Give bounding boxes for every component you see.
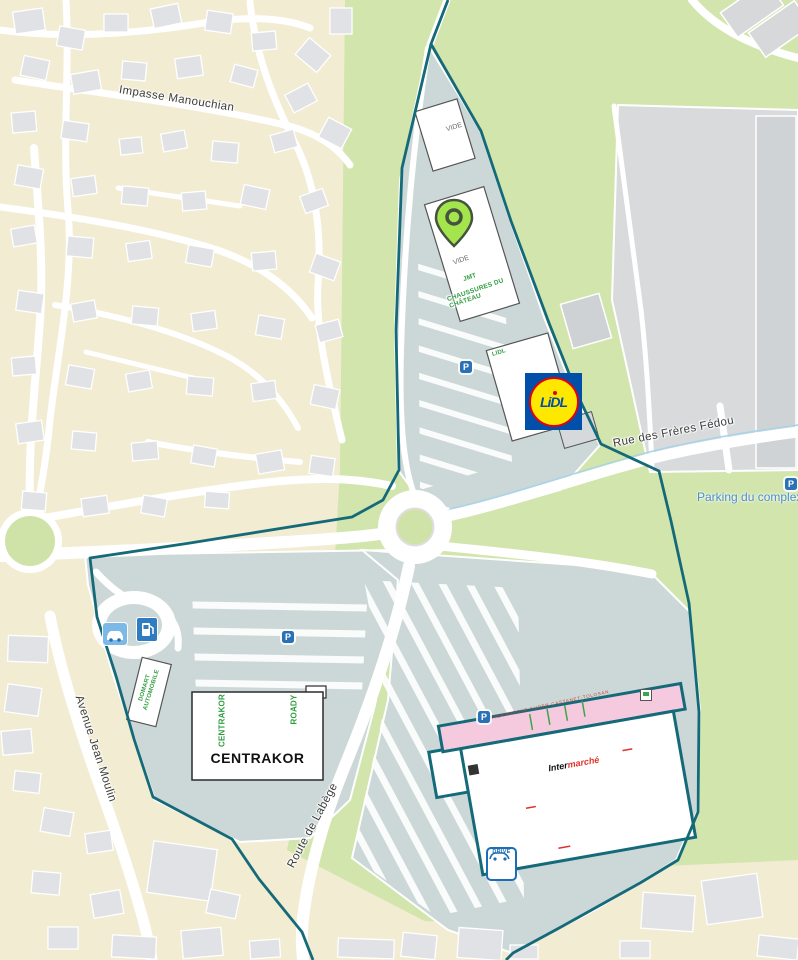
- house: [111, 935, 156, 959]
- house: [119, 137, 143, 155]
- house: [401, 932, 437, 959]
- house: [71, 431, 96, 451]
- house: [255, 315, 284, 339]
- house: [338, 938, 395, 959]
- house: [205, 10, 234, 33]
- roady-vertical-label: ROADY: [290, 690, 299, 730]
- house: [141, 495, 168, 517]
- house: [11, 111, 37, 133]
- house: [104, 14, 128, 32]
- house: [31, 871, 61, 895]
- house: [457, 928, 503, 960]
- house: [81, 495, 109, 516]
- parking-icon: P: [478, 711, 490, 723]
- centrakor-building: [192, 692, 323, 780]
- centrakor-label: CENTRAKOR: [192, 750, 323, 766]
- house: [251, 31, 276, 51]
- parking-rows-centrakor: [192, 586, 368, 694]
- drive-pickup-icon: DRIVE: [486, 847, 517, 881]
- parking-icon: P: [460, 361, 472, 373]
- house: [71, 300, 98, 322]
- house: [90, 890, 124, 919]
- west-circle-center: [5, 516, 55, 566]
- parking-complexe-label: Parking du complexe: [697, 490, 798, 504]
- centrakor-vertical-label: CENTRAKOR: [218, 685, 227, 757]
- house: [211, 141, 239, 163]
- lidl-i-dot: [553, 391, 557, 395]
- house: [85, 830, 114, 853]
- lidl-logo: LiDL: [525, 373, 582, 430]
- house: [249, 939, 280, 959]
- house: [16, 290, 45, 313]
- house: [255, 450, 284, 474]
- house: [620, 941, 650, 958]
- house: [16, 420, 45, 443]
- house: [186, 245, 215, 267]
- house: [147, 841, 218, 901]
- cart-icon: [640, 689, 652, 701]
- house: [126, 370, 153, 392]
- house: [1, 729, 33, 756]
- house: [21, 491, 46, 511]
- house: [309, 455, 335, 476]
- house: [14, 165, 43, 189]
- fuel-station-icon: [136, 617, 158, 642]
- lidl-logo-circle: LiDL: [529, 377, 579, 427]
- house: [56, 26, 85, 50]
- parking-icon: P: [785, 478, 797, 490]
- house: [66, 236, 94, 258]
- house: [757, 935, 798, 960]
- car-wash-icon: [102, 622, 128, 646]
- house: [204, 491, 229, 509]
- house: [121, 186, 148, 206]
- house: [181, 191, 206, 211]
- map-canvas: [0, 0, 798, 960]
- house: [126, 240, 152, 261]
- house: [191, 310, 217, 331]
- house: [48, 927, 78, 949]
- house: [11, 356, 36, 376]
- house: [40, 808, 74, 837]
- map-container: Impasse Manouchian Rue des Frères Fédou …: [0, 0, 798, 960]
- house: [175, 55, 204, 78]
- house: [181, 927, 223, 958]
- entrance-icon: [468, 764, 480, 776]
- house: [4, 684, 42, 716]
- house: [251, 251, 276, 271]
- house: [641, 892, 695, 932]
- house: [8, 635, 49, 662]
- lidl-logo-text: LiDL: [540, 394, 567, 410]
- house: [70, 70, 101, 95]
- house: [131, 306, 158, 326]
- house: [121, 61, 146, 81]
- parking-icon: P: [282, 631, 294, 643]
- house: [61, 120, 89, 141]
- house: [65, 365, 94, 389]
- house: [186, 376, 213, 396]
- house: [71, 175, 97, 196]
- house: [191, 445, 218, 467]
- house: [330, 8, 352, 34]
- house: [11, 225, 38, 247]
- house: [131, 441, 158, 461]
- house: [251, 380, 277, 401]
- house: [161, 130, 188, 152]
- house: [701, 873, 763, 924]
- location-pin[interactable]: [434, 198, 474, 250]
- house: [13, 771, 41, 794]
- house: [13, 8, 46, 34]
- roundabout-center: [397, 509, 434, 546]
